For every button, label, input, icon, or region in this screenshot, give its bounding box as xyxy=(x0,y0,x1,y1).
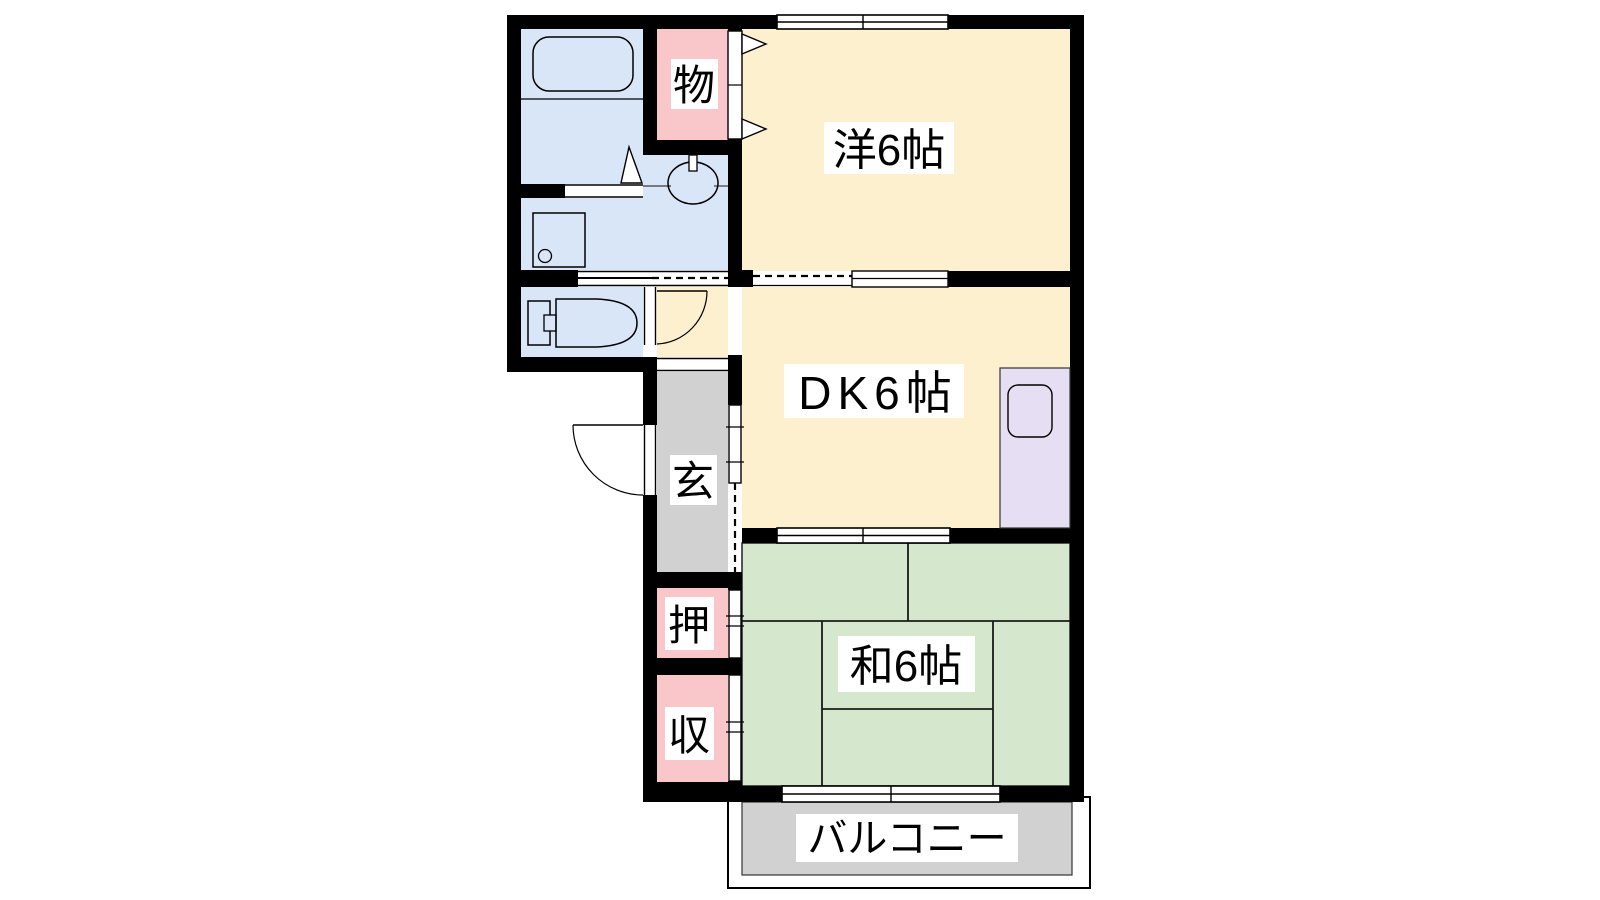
balcony-label: バルコニー xyxy=(807,817,1006,861)
wall xyxy=(643,15,657,155)
wall xyxy=(742,528,777,543)
window-dk-japanese xyxy=(777,528,950,543)
wall xyxy=(643,658,742,675)
wall xyxy=(507,357,657,372)
wall xyxy=(728,355,742,405)
fusuma-panel xyxy=(729,675,741,781)
wall xyxy=(948,15,1084,29)
wall xyxy=(643,572,742,588)
storage-closet-label: 物 xyxy=(673,62,715,109)
floor-plan-drawing: 物 洋6帖 DK6帖 玄 押 収 和6帖 バルコニー xyxy=(0,0,1600,900)
western-dk-opening xyxy=(753,271,852,287)
floor-plan-page: 物 洋6帖 DK6帖 玄 押 収 和6帖 バルコニー xyxy=(0,0,1600,900)
western-room-label: 洋6帖 xyxy=(833,126,945,175)
wall xyxy=(948,271,1070,287)
door-swing-arc xyxy=(573,425,643,495)
wall xyxy=(521,184,565,198)
wall xyxy=(643,372,657,425)
toilet-handle-icon xyxy=(544,315,556,331)
wall xyxy=(657,140,728,155)
bathroom-floor xyxy=(521,29,643,184)
wall xyxy=(643,782,742,802)
wall xyxy=(643,495,657,802)
oshiire-lower-label: 収 xyxy=(668,712,710,759)
wall xyxy=(950,528,1070,543)
kitchen-counter-icon xyxy=(1000,368,1070,528)
window-top xyxy=(777,15,948,29)
sliding-door-panel xyxy=(729,405,741,483)
japanese-room-label: 和6帖 xyxy=(850,642,962,691)
wall xyxy=(507,15,521,372)
entrance-label: 玄 xyxy=(672,458,714,505)
oshiire-upper-label: 押 xyxy=(668,602,710,649)
faucet-icon xyxy=(689,155,697,171)
window-balcony xyxy=(782,786,1000,802)
hall-floor xyxy=(657,287,728,357)
fusuma-panel xyxy=(729,590,741,658)
wall xyxy=(1070,15,1084,802)
washroom-floor-lower xyxy=(521,198,728,270)
wall xyxy=(728,270,753,287)
dining-kitchen-label: DK6帖 xyxy=(798,367,957,419)
bathroom-door-opening xyxy=(565,184,643,198)
wall xyxy=(728,658,742,675)
wall xyxy=(507,270,578,287)
wall xyxy=(728,572,742,590)
